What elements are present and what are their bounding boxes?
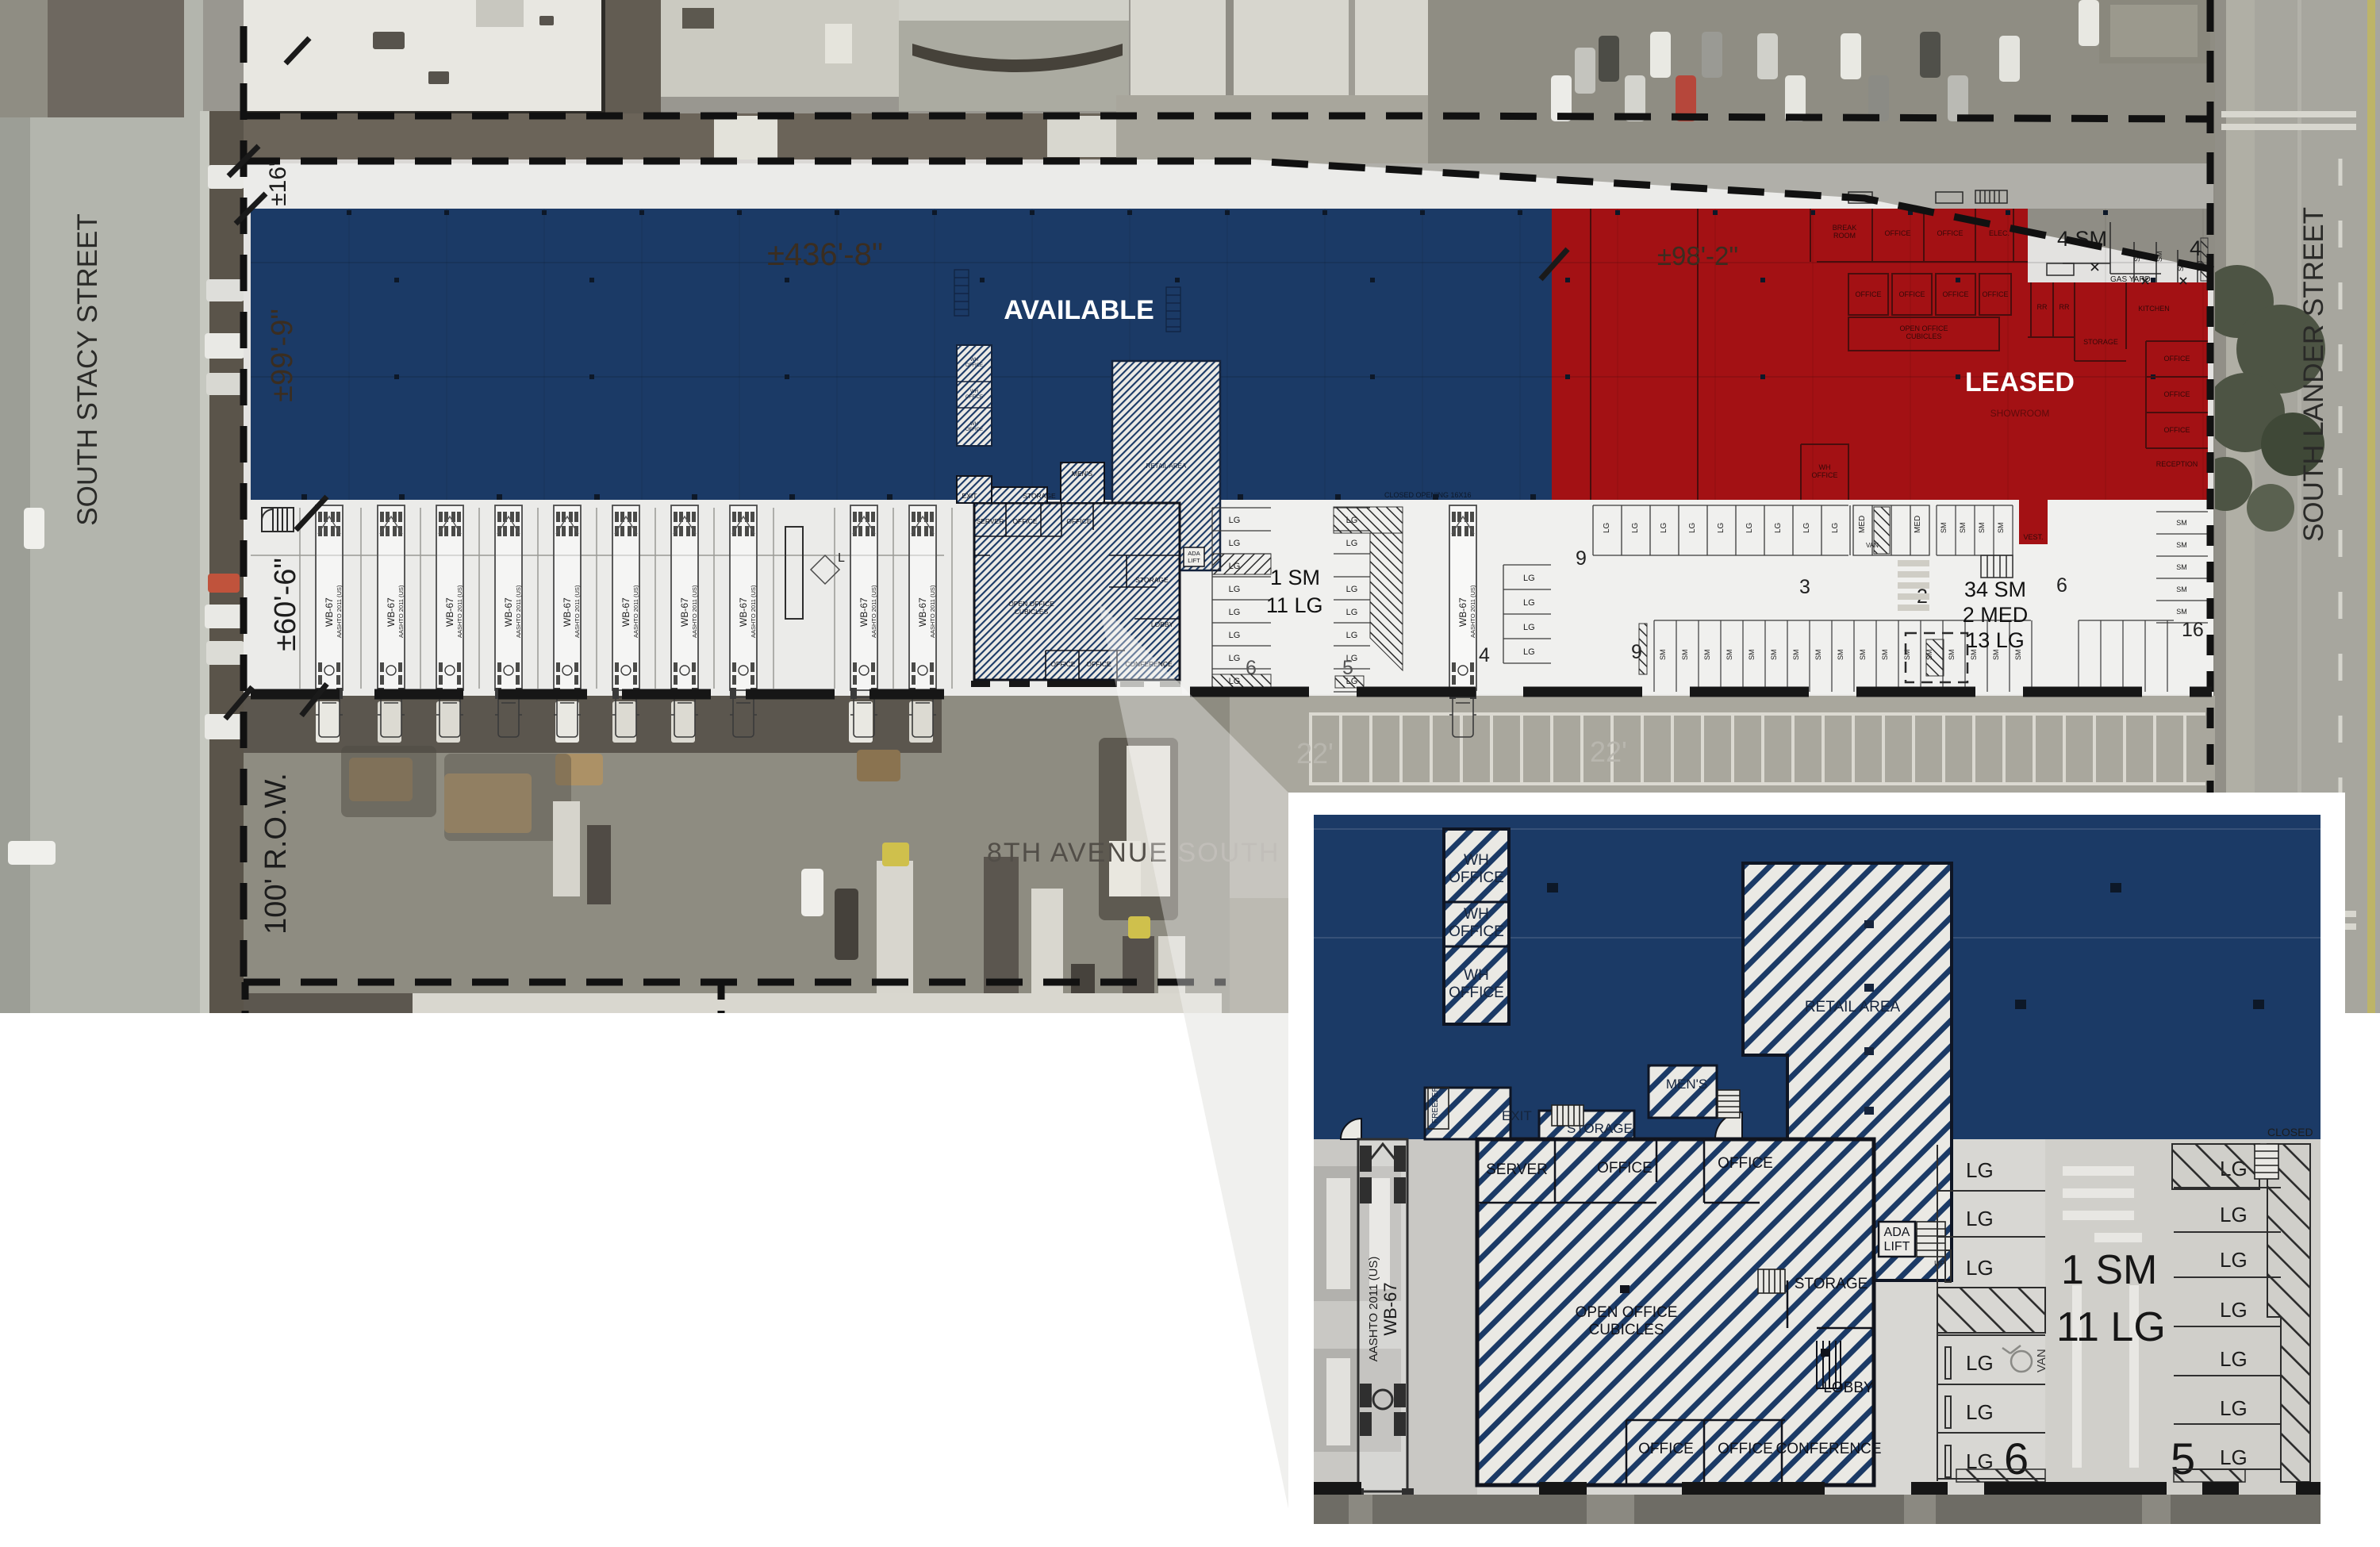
- svg-text:LG: LG: [1229, 516, 1241, 525]
- svg-text:OPEN OFFICE: OPEN OFFICE: [1008, 600, 1054, 608]
- svg-text:11 LG: 11 LG: [2056, 1304, 2166, 1350]
- svg-text:LG: LG: [1966, 1158, 1994, 1182]
- svg-text:FREEZER: FREEZER: [1431, 1086, 1440, 1123]
- svg-text:RETAIL AREA: RETAIL AREA: [1805, 999, 1901, 1015]
- svg-text:LIFT: LIFT: [1884, 1240, 1910, 1253]
- svg-text:SM: SM: [1770, 650, 1778, 661]
- svg-text:WB-67: WB-67: [917, 597, 928, 627]
- svg-text:16: 16: [2182, 619, 2204, 641]
- svg-text:1 SM: 1 SM: [2061, 1247, 2157, 1293]
- svg-text:OFFICE: OFFICE: [1812, 471, 1838, 479]
- svg-text:OFFICE: OFFICE: [1449, 923, 1504, 940]
- svg-text:LG: LG: [1229, 654, 1241, 663]
- svg-text:SM: SM: [1659, 650, 1667, 661]
- svg-text:SHOWROOM: SHOWROOM: [1990, 408, 2050, 419]
- svg-text:ROOM: ROOM: [1833, 232, 1856, 240]
- svg-text:SM: SM: [1859, 650, 1867, 661]
- svg-text:SM: SM: [1903, 650, 1911, 661]
- svg-text:WH: WH: [1464, 967, 1489, 984]
- svg-text:SM: SM: [1837, 650, 1844, 661]
- svg-text:AASHTO 2011 (US): AASHTO 2011 (US): [456, 585, 463, 638]
- svg-text:EXIT: EXIT: [962, 492, 977, 500]
- svg-text:3: 3: [1799, 576, 1810, 598]
- svg-text:SM: SM: [1948, 650, 1956, 661]
- svg-text:LG: LG: [1229, 585, 1241, 594]
- svg-text:LG: LG: [2220, 1347, 2248, 1371]
- svg-text:LIFT: LIFT: [1188, 557, 1200, 564]
- svg-text:SERVER: SERVER: [1486, 1161, 1548, 1178]
- svg-text:AASHTO 2011 (US): AASHTO 2011 (US): [515, 585, 522, 638]
- svg-text:OFFICE: OFFICE: [1449, 869, 1504, 886]
- svg-text:WB-67: WB-67: [620, 597, 631, 627]
- svg-text:SM: SM: [1959, 523, 1967, 534]
- svg-text:WB-67: WB-67: [562, 597, 573, 627]
- svg-text:LG: LG: [1346, 585, 1358, 594]
- svg-text:LG: LG: [1523, 574, 1535, 583]
- svg-text:LG: LG: [1229, 631, 1241, 640]
- svg-text:LG: LG: [1688, 522, 1697, 533]
- svg-text:OFFICE: OFFICE: [2164, 355, 2190, 363]
- svg-text:±436'-8": ±436'-8": [767, 237, 883, 272]
- svg-text:OFFICE: OFFICE: [2164, 390, 2190, 398]
- svg-text:MED: MED: [1858, 516, 1867, 533]
- svg-text:LG: LG: [2220, 1203, 2248, 1226]
- svg-text:±98'-2": ±98'-2": [1657, 241, 1738, 271]
- svg-text:SM: SM: [1978, 523, 1986, 534]
- svg-text:OFFICE: OFFICE: [1885, 229, 1911, 237]
- svg-text:L: L: [838, 551, 845, 565]
- svg-text:±99'-9": ±99'-9": [266, 309, 299, 402]
- svg-text:13 LG: 13 LG: [1966, 628, 2025, 652]
- svg-text:WB-67: WB-67: [679, 597, 690, 627]
- svg-text:LEASED: LEASED: [1965, 367, 2075, 397]
- svg-text:KITCHEN: KITCHEN: [2138, 305, 2170, 313]
- svg-text:SOUTH LANDER STREET: SOUTH LANDER STREET: [2298, 207, 2329, 542]
- svg-text:WB-67: WB-67: [1457, 597, 1468, 627]
- svg-text:LG: LG: [1523, 623, 1535, 632]
- svg-text:AASHTO 2011 (US): AASHTO 2011 (US): [336, 585, 343, 638]
- svg-text:LG: LG: [1346, 631, 1358, 640]
- svg-text:STORAGE: STORAGE: [1135, 576, 1169, 584]
- svg-text:WH: WH: [1464, 906, 1489, 923]
- svg-text:OPEN OFFICE: OPEN OFFICE: [1576, 1304, 1678, 1321]
- svg-text:LG: LG: [1603, 522, 1611, 533]
- svg-text:OFFICE: OFFICE: [2164, 426, 2190, 434]
- svg-text:LG: LG: [1966, 1400, 1994, 1424]
- svg-text:ELEC.: ELEC.: [1989, 229, 2010, 237]
- svg-text:SM: SM: [1881, 650, 1889, 661]
- svg-text:LG: LG: [2220, 1445, 2248, 1469]
- svg-text:1 SM: 1 SM: [1270, 566, 1320, 589]
- svg-text:LG: LG: [1802, 522, 1811, 533]
- svg-text:OFFICE: OFFICE: [1899, 290, 1925, 298]
- svg-text:ADA: ADA: [1884, 1226, 1910, 1239]
- svg-text:34 SM: 34 SM: [1964, 578, 2026, 601]
- svg-text:SM: SM: [2176, 563, 2187, 571]
- svg-text:CLOSED OPENING 16X16: CLOSED OPENING 16X16: [1384, 491, 1472, 499]
- svg-text:SM: SM: [2176, 519, 2187, 527]
- svg-text:6: 6: [2056, 574, 2067, 597]
- svg-text:LG: LG: [2220, 1248, 2248, 1272]
- svg-text:OFFICE: OFFICE: [1086, 660, 1111, 668]
- svg-text:SM: SM: [2176, 541, 2187, 549]
- svg-text:RR: RR: [2037, 303, 2048, 311]
- svg-text:LG: LG: [1229, 608, 1241, 617]
- svg-text:LG: LG: [1966, 1351, 1994, 1375]
- svg-text:OPEN OFFICE: OPEN OFFICE: [1899, 324, 1948, 332]
- svg-text:OFFICE: OFFICE: [1718, 1155, 1773, 1172]
- svg-text:SM: SM: [2176, 608, 2187, 616]
- svg-text:LG: LG: [1346, 539, 1358, 548]
- svg-text:MEN'S: MEN'S: [1072, 470, 1093, 478]
- svg-text:LG: LG: [2220, 1298, 2248, 1322]
- svg-text:11 LG: 11 LG: [1266, 593, 1323, 617]
- svg-text:LG: LG: [1831, 522, 1840, 533]
- svg-text:EXIT: EXIT: [1502, 1108, 1532, 1123]
- svg-text:ADA: ADA: [1188, 550, 1200, 557]
- svg-text:BREAK: BREAK: [1833, 224, 1857, 232]
- svg-text:OFFICE: OFFICE: [1066, 517, 1091, 525]
- svg-text:OFFICE: OFFICE: [965, 395, 983, 400]
- svg-text:WB-67: WB-67: [386, 597, 397, 627]
- svg-text:WH: WH: [970, 390, 978, 394]
- svg-text:WB-67: WB-67: [444, 597, 455, 627]
- svg-text:OFFICE: OFFICE: [1856, 290, 1882, 298]
- svg-text:OFFICE: OFFICE: [1050, 660, 1075, 668]
- svg-text:SOUTH STACY STREET: SOUTH STACY STREET: [72, 213, 103, 525]
- svg-text:OFFICE: OFFICE: [965, 363, 983, 368]
- svg-text:AASHTO 2011 (US): AASHTO 2011 (US): [1367, 1257, 1380, 1362]
- svg-text:WH: WH: [1819, 463, 1831, 471]
- svg-text:VAN: VAN: [2035, 1349, 2048, 1372]
- svg-text:OFFICE: OFFICE: [1638, 1441, 1694, 1457]
- svg-text:WB-67: WB-67: [858, 597, 869, 627]
- svg-text:WB-67: WB-67: [1380, 1282, 1400, 1335]
- svg-text:WB-67: WB-67: [738, 597, 749, 627]
- svg-text:100' R.O.W.: 100' R.O.W.: [259, 773, 293, 935]
- svg-text:OFFICE: OFFICE: [965, 428, 983, 432]
- svg-text:LG: LG: [1774, 522, 1783, 533]
- svg-text:RETAIL AREA: RETAIL AREA: [1146, 463, 1187, 470]
- svg-text:LG: LG: [1966, 1256, 1994, 1280]
- svg-text:AASHTO 2011 (US): AASHTO 2011 (US): [1469, 585, 1476, 638]
- svg-text:CUBICLES: CUBICLES: [1906, 332, 1941, 340]
- svg-text:LG: LG: [1745, 522, 1754, 533]
- svg-text:22': 22': [1590, 735, 1627, 768]
- svg-text:4: 4: [1479, 644, 1490, 666]
- svg-text:LG: LG: [1631, 522, 1640, 533]
- svg-text:SM: SM: [1681, 650, 1689, 661]
- svg-text:±16': ±16': [265, 162, 291, 206]
- svg-text:VEST.: VEST.: [2023, 533, 2043, 541]
- svg-text:LG: LG: [1523, 598, 1535, 608]
- svg-text:STORAGE: STORAGE: [1023, 492, 1056, 500]
- svg-text:SM: SM: [1997, 523, 2005, 534]
- svg-text:WH: WH: [970, 358, 978, 363]
- svg-text:STORAGE: STORAGE: [1795, 1276, 1868, 1292]
- svg-text:LG: LG: [1660, 522, 1668, 533]
- svg-text:AASHTO 2011 (US): AASHTO 2011 (US): [870, 585, 877, 638]
- svg-text:2 MED: 2 MED: [1963, 603, 2029, 627]
- svg-text:SM: SM: [2176, 585, 2187, 593]
- svg-text:WB-67: WB-67: [324, 597, 335, 627]
- svg-text:OFFICE: OFFICE: [1937, 229, 1963, 237]
- svg-text:VAN: VAN: [1866, 542, 1879, 549]
- svg-text:AASHTO 2011 (US): AASHTO 2011 (US): [929, 585, 936, 638]
- svg-text:WH: WH: [1464, 852, 1489, 869]
- svg-text:STORAGE: STORAGE: [2083, 338, 2118, 346]
- svg-text:CONFERENCE: CONFERENCE: [1775, 1441, 1881, 1457]
- svg-text:SM: SM: [1703, 650, 1711, 661]
- svg-text:OFFICE: OFFICE: [1943, 290, 1969, 298]
- svg-text:AVAILABLE: AVAILABLE: [1004, 295, 1154, 325]
- svg-text:4: 4: [2190, 236, 2201, 260]
- svg-text:RR: RR: [2059, 303, 2070, 311]
- svg-text:LG: LG: [1717, 522, 1725, 533]
- svg-text:AASHTO 2011 (US): AASHTO 2011 (US): [397, 585, 405, 638]
- svg-text:LOBBY: LOBBY: [1151, 620, 1174, 628]
- svg-text:OFFICE: OFFICE: [1012, 517, 1037, 525]
- svg-text:MED: MED: [1914, 516, 1922, 533]
- svg-text:9: 9: [1576, 547, 1587, 570]
- svg-text:OFFICE: OFFICE: [1718, 1441, 1773, 1457]
- svg-text:LG: LG: [1229, 539, 1241, 548]
- svg-text:UP: UP: [1934, 1260, 1945, 1269]
- svg-text:CUBICLES: CUBICLES: [1015, 608, 1049, 616]
- svg-text:OFFICE: OFFICE: [1983, 290, 2009, 298]
- svg-text:LG: LG: [1523, 647, 1535, 657]
- svg-text:LG: LG: [1346, 608, 1358, 617]
- svg-text:SM: SM: [1792, 650, 1800, 661]
- svg-text:SM: SM: [1940, 523, 1948, 534]
- svg-text:AASHTO 2011 (US): AASHTO 2011 (US): [750, 585, 757, 638]
- svg-text:SM: SM: [1725, 650, 1733, 661]
- svg-text:22': 22': [1296, 737, 1334, 770]
- svg-text:SERVER: SERVER: [977, 517, 1004, 525]
- svg-text:OFFICE: OFFICE: [1449, 985, 1504, 1001]
- svg-text:OFFICE: OFFICE: [1597, 1160, 1653, 1177]
- svg-text:SM: SM: [1748, 650, 1756, 661]
- svg-text:SM: SM: [1814, 650, 1822, 661]
- svg-text:RECEPTION: RECEPTION: [2156, 460, 2198, 468]
- svg-text:LG: LG: [1966, 1207, 1994, 1230]
- svg-text:WB-67: WB-67: [503, 597, 514, 627]
- svg-text:AASHTO 2011 (US): AASHTO 2011 (US): [574, 585, 581, 638]
- svg-text:MEN'S: MEN'S: [1666, 1077, 1707, 1092]
- svg-text:CLOSED: CLOSED: [2267, 1126, 2313, 1138]
- svg-text:CUBICLES: CUBICLES: [1588, 1322, 1664, 1338]
- svg-text:LG: LG: [2220, 1396, 2248, 1420]
- svg-text:AASHTO 2011 (US): AASHTO 2011 (US): [691, 585, 698, 638]
- svg-text:AASHTO 2011 (US): AASHTO 2011 (US): [632, 585, 639, 638]
- svg-text:WH: WH: [970, 422, 978, 427]
- svg-text:±60'-6": ±60'-6": [269, 558, 302, 651]
